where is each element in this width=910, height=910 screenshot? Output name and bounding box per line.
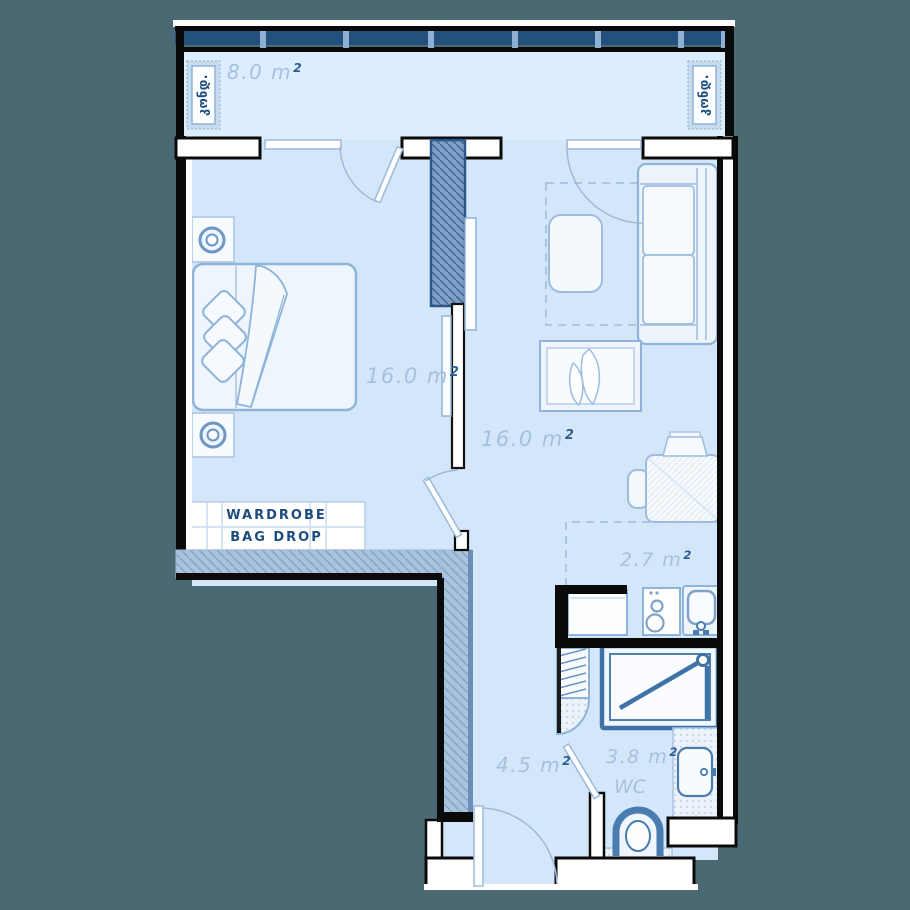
balcony-area-label: 8.0 m2 bbox=[227, 60, 303, 84]
living-area-label: 16.0 m2 bbox=[481, 427, 575, 451]
bathroom-area-label: 3.8 m2 bbox=[606, 746, 679, 768]
bottom-wall-right bbox=[556, 858, 694, 886]
sofa bbox=[638, 164, 717, 344]
kitchen-area-label: 2.7 m2 bbox=[620, 549, 693, 571]
wc-label: WC bbox=[614, 776, 646, 798]
sliding-panel bbox=[465, 218, 476, 330]
bedroom-area-label: 16.0 m2 bbox=[366, 364, 460, 388]
left-wall bbox=[176, 136, 186, 554]
hatched-partition bbox=[431, 140, 465, 306]
ac-right-label: კონდ. bbox=[687, 61, 721, 129]
sofa-cushion bbox=[643, 255, 694, 324]
shower bbox=[602, 646, 718, 728]
corner-wall-step bbox=[668, 818, 736, 846]
washbasin bbox=[673, 728, 718, 820]
tv-stand bbox=[540, 341, 641, 411]
nightstand-top bbox=[192, 217, 234, 262]
wc-wall bbox=[590, 793, 604, 865]
hatched-exterior-wall bbox=[176, 531, 473, 822]
balcony-wall-segment bbox=[643, 138, 733, 158]
bedroom-balcony-door-leaf bbox=[265, 140, 341, 149]
sofa-cushion bbox=[643, 186, 694, 255]
kitchen-bath-wall bbox=[557, 638, 722, 648]
ac-left-label: კონდ. bbox=[186, 61, 220, 129]
coffee-table bbox=[549, 215, 602, 292]
floor-plan: 8.0 m2 16.0 m2 16.0 m2 2.7 m2 4.5 m2 3.8… bbox=[0, 0, 910, 910]
nightstand-bottom bbox=[192, 413, 234, 457]
faucet-icon bbox=[697, 622, 705, 630]
balcony-glazing bbox=[175, 31, 733, 45]
bed bbox=[193, 264, 356, 410]
entry-door-leaf bbox=[474, 806, 483, 886]
shower-head-icon bbox=[698, 655, 709, 666]
floor-plan-drawing bbox=[0, 0, 910, 910]
monitor bbox=[663, 437, 707, 456]
living-balcony-door-leaf bbox=[567, 140, 641, 149]
wardrobe-label: WARDROBE BAG DROP bbox=[188, 502, 365, 550]
bottom-wall-left bbox=[426, 858, 478, 886]
right-wall bbox=[717, 136, 723, 824]
balcony-wall-segment bbox=[176, 138, 260, 158]
fridge-counter bbox=[568, 590, 627, 635]
hallway-area-label: 4.5 m2 bbox=[496, 753, 572, 777]
